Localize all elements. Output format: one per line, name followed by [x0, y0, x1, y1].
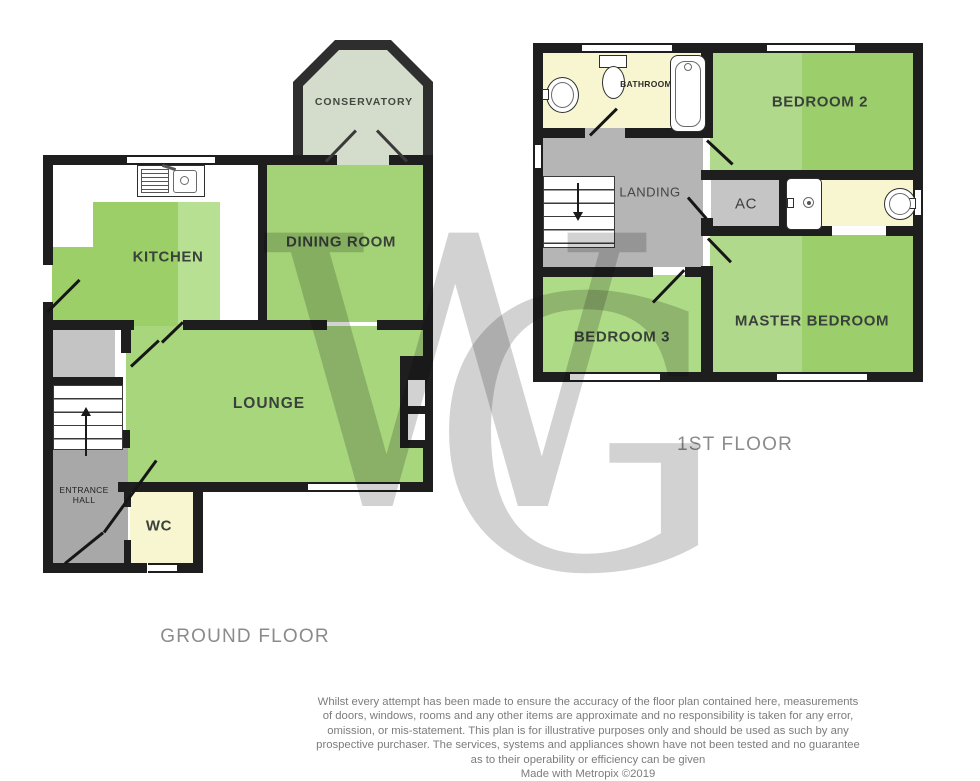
- basin-tap-icon: [542, 89, 549, 100]
- entrance-hall-floor: [53, 448, 128, 564]
- room-label-bedroom2: BEDROOM 2: [772, 94, 868, 111]
- wall: [913, 215, 923, 372]
- window: [570, 372, 660, 382]
- window: [582, 43, 672, 53]
- staircase-up: [53, 385, 123, 450]
- wall: [543, 128, 585, 138]
- window: [148, 563, 177, 573]
- room-label-master-bedroom: MASTER BEDROOM: [735, 313, 889, 330]
- floorplan-canvas: KITCHEN DINING ROOM CONSERVATORY LOUNGE …: [0, 0, 980, 781]
- ground-floor-title: GROUND FLOOR: [160, 626, 330, 648]
- room-label-lounge: LOUNGE: [233, 395, 305, 413]
- wall: [685, 267, 711, 277]
- understairs-cupboard-floor: [53, 330, 115, 378]
- stairs-up-arrow-icon: [85, 414, 87, 456]
- room-label-dining-room: DINING ROOM: [286, 234, 396, 251]
- conservatory-door-opening: [337, 155, 389, 165]
- wall: [43, 157, 53, 265]
- room-label-entrance-hall: ENTRANCE HALL: [59, 485, 108, 505]
- wash-basin-bowl-icon: [551, 82, 574, 108]
- sink-drainer-icon: [141, 169, 169, 193]
- credit-text: Made with Metropix ©2019: [188, 767, 980, 781]
- room-label-bedroom3: BEDROOM 3: [574, 329, 670, 346]
- wall: [377, 320, 423, 330]
- shower-tap-icon: [787, 198, 794, 208]
- wall: [701, 266, 713, 372]
- wall: [886, 226, 913, 236]
- wall: [121, 322, 131, 353]
- wall: [118, 482, 308, 492]
- room-label-conservatory: CONSERVATORY: [315, 96, 413, 108]
- stairs-down-arrow-icon: [573, 212, 583, 221]
- wall: [913, 53, 923, 190]
- chimney-alcove: [408, 414, 425, 440]
- footer: Whilst every attempt has been made to en…: [188, 695, 980, 781]
- wall: [193, 482, 203, 573]
- wall: [533, 267, 653, 277]
- sink-drain-icon: [180, 176, 189, 185]
- disclaimer-text: Whilst every attempt has been made to en…: [188, 695, 980, 767]
- window: [308, 482, 400, 492]
- stairs-up-arrow-icon: [81, 407, 91, 416]
- wall: [43, 302, 53, 572]
- window: [767, 43, 855, 53]
- chimney-alcove: [408, 380, 425, 406]
- window: [127, 155, 215, 165]
- wall: [43, 563, 147, 573]
- room-label-wc: WC: [146, 518, 172, 535]
- room-label-bathroom: BATHROOM: [620, 79, 672, 89]
- room-label-landing: LANDING: [619, 185, 680, 200]
- bedroom3-floor: [543, 275, 701, 372]
- stairs-down-arrow-icon: [577, 183, 579, 213]
- wall: [258, 163, 267, 322]
- first-floor-title: 1ST FLOOR: [677, 434, 793, 456]
- shower-control-dot-icon: [807, 201, 811, 205]
- room-label-airing-cupboard: AC: [735, 196, 757, 213]
- wall: [53, 377, 123, 385]
- wall: [177, 563, 203, 573]
- wall: [400, 482, 433, 492]
- wall: [124, 540, 131, 563]
- room-label-kitchen: KITCHEN: [133, 249, 204, 266]
- wash-basin-bowl-icon: [889, 193, 911, 215]
- bath-tap-icon: [684, 63, 692, 71]
- window: [777, 372, 867, 382]
- window: [533, 145, 543, 168]
- wall: [183, 320, 327, 330]
